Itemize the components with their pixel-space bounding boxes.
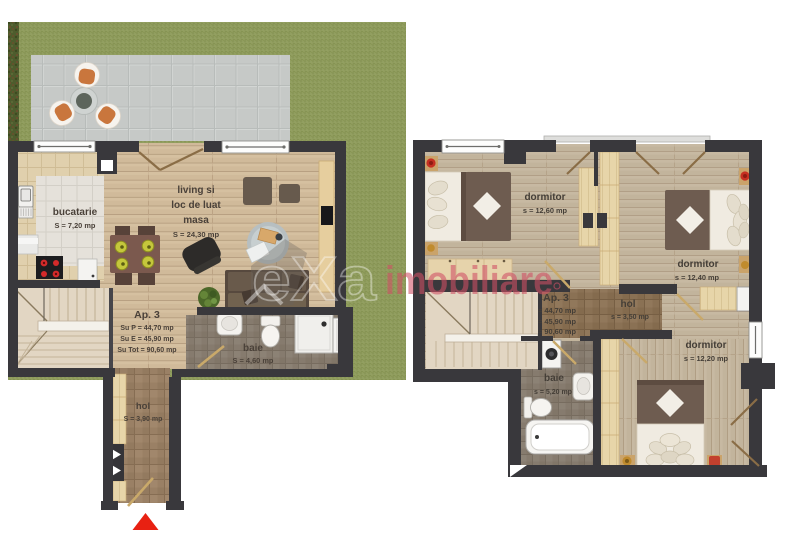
svg-text:Su E = 45,90 mp: Su E = 45,90 mp (120, 336, 174, 343)
svg-text:Ap. 3: Ap. 3 (134, 309, 160, 321)
svg-text:hol: hol (621, 299, 636, 310)
svg-text:dormitor: dormitor (677, 259, 718, 270)
svg-text:Su Tot = 90,60 mp: Su Tot = 90,60 mp (117, 347, 176, 354)
svg-text:Su P = 44,70 mp: Su P = 44,70 mp (120, 325, 173, 332)
svg-text:bucatarie: bucatarie (53, 207, 98, 218)
svg-text:S = 3,90 mp: S = 3,90 mp (124, 416, 163, 423)
svg-text:S = 7,20 mp: S = 7,20 mp (55, 221, 96, 230)
svg-text:baie: baie (243, 343, 263, 354)
svg-text:= 90,60 mp: = 90,60 mp (538, 327, 576, 336)
svg-text:= 45,90 mp: = 45,90 mp (538, 317, 576, 326)
svg-text:s = 12,40 mp: s = 12,40 mp (675, 273, 720, 282)
svg-text:eXa: eXa (252, 245, 377, 314)
svg-text:hol: hol (136, 401, 150, 412)
svg-text:dormitor: dormitor (685, 340, 726, 351)
svg-text:masa: masa (183, 215, 209, 226)
svg-text:= 44,70 mp: = 44,70 mp (538, 306, 576, 315)
svg-text:living si: living si (177, 185, 214, 196)
svg-text:S = 4,60 mp: S = 4,60 mp (233, 356, 274, 365)
svg-text:S = 24,30 mp: S = 24,30 mp (173, 230, 220, 239)
svg-text:s = 5,20 mp: s = 5,20 mp (534, 389, 572, 396)
svg-text:imobiliare: imobiliare (385, 259, 553, 303)
svg-text:loc de luat: loc de luat (171, 200, 221, 211)
svg-text:s = 12,20 mp: s = 12,20 mp (684, 354, 729, 363)
svg-text:s = 12,60 mp: s = 12,60 mp (523, 206, 568, 215)
svg-text:baie: baie (544, 373, 564, 384)
svg-text:dormitor: dormitor (524, 192, 565, 203)
svg-text:s = 3,50 mp: s = 3,50 mp (611, 314, 649, 321)
